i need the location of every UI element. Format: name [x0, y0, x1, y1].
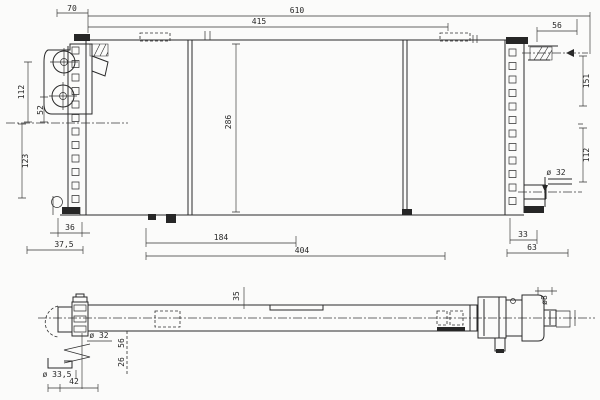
mount-hole-dashed	[155, 311, 463, 327]
dim-depth-b: 26	[117, 357, 126, 367]
drain-dark	[496, 349, 504, 353]
dim-left-port-offset: 52	[36, 105, 45, 115]
front-dimension-lines	[18, 9, 590, 260]
front-dark-details	[62, 34, 544, 223]
dim-bottom-left-b: 37,5	[54, 240, 73, 249]
plan-right-end-assembly	[470, 295, 575, 353]
drawing-sheet: 70 610 415 56 112 52 123 286 151 112 ø 3…	[0, 0, 600, 400]
dim-bottom-left-a: 36	[65, 223, 75, 232]
bracket-channel	[48, 358, 72, 368]
plan-dark-row	[437, 327, 465, 331]
inlet-arm-hatch	[530, 47, 552, 60]
dim-bottom-span-b: 404	[295, 246, 310, 255]
dim-right-offset: 56	[552, 21, 562, 30]
dim-left-height-lower: 123	[21, 154, 30, 169]
cap-plug-circle	[511, 299, 516, 304]
front-core-outline	[60, 40, 524, 215]
dim-hose-dia: ø 33,5	[43, 370, 72, 379]
hex-fitting-block	[478, 297, 506, 338]
dim-end-width: 42	[69, 377, 79, 386]
dim-pin-dia: ø8	[540, 295, 549, 305]
left-end-plate	[58, 307, 72, 332]
dim-overall-width: 610	[290, 6, 305, 15]
dim-upper-width: 415	[252, 17, 267, 26]
filler-neck-assembly	[44, 44, 108, 114]
dim-left-height-upper: 112	[17, 85, 26, 100]
dim-bottom-right-b: 63	[527, 243, 537, 252]
dim-right-height-upper: 151	[582, 74, 591, 89]
dim-right-height-lower: 112	[582, 148, 591, 163]
outlet-dia-arrowhead	[542, 185, 548, 192]
technical-drawing-canvas: 70 610 415 56 112 52 123 286 151 112 ø 3…	[0, 0, 600, 400]
front-elevation-view: 70 610 415 56 112 52 123 286 151 112 ø 3…	[6, 4, 591, 260]
front-centerlines	[6, 53, 588, 192]
dim-bottom-span-a: 184	[214, 233, 229, 242]
left-neck-squares	[74, 305, 86, 332]
dim-bracket-width: 35	[232, 291, 241, 301]
plan-left-end-assembly	[45, 294, 90, 368]
dim-top-offset: 70	[67, 4, 77, 13]
top-mount-ticks	[205, 31, 477, 43]
front-core-separators	[188, 40, 407, 215]
filler-bracket-tab	[92, 56, 108, 76]
dim-inlet-dia: ø 32	[89, 331, 108, 340]
plan-view: ø 32 56 26 35 ø 33,5 42 ø8	[38, 287, 595, 392]
dim-core-height: 286	[224, 115, 233, 130]
left-neck-block	[72, 294, 88, 336]
dim-depth-a: 56	[117, 338, 126, 348]
hose-arc-dashed	[45, 306, 58, 337]
filler-bracket-hatch	[90, 44, 108, 56]
dim-bottom-right-a: 33	[518, 230, 528, 239]
left-header-squares	[72, 47, 79, 203]
end-clip	[556, 310, 575, 327]
right-header-squares	[509, 49, 516, 205]
break-zigzag	[64, 344, 90, 363]
dim-outlet-dia: ø 32	[546, 168, 565, 177]
